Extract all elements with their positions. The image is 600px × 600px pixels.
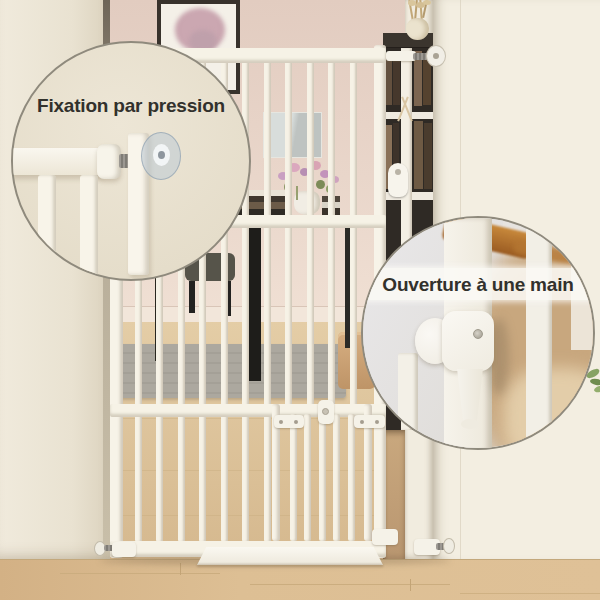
floor-plank-joint	[180, 563, 181, 575]
gate-latch-receiver	[388, 163, 408, 197]
pet-door-bar	[304, 414, 311, 541]
bottom-bracket	[372, 529, 398, 545]
bottom-fitting	[112, 542, 136, 557]
book-spine	[385, 55, 392, 105]
pampas-fluff	[408, 0, 416, 6]
pet-door-hinge-plate	[274, 415, 304, 428]
pet-door-bar	[333, 414, 340, 541]
gate-bar-close-up	[80, 175, 98, 281]
book-spine	[414, 121, 423, 189]
shelf-vase	[406, 18, 429, 40]
callout-one-hand-open: Ouverture à une main	[361, 216, 595, 450]
pampas-fluff	[423, 0, 431, 5]
flower-stem	[296, 186, 298, 200]
pet-door-bar	[348, 414, 355, 541]
pet-door-bar	[319, 414, 326, 541]
gate-bar	[307, 55, 314, 407]
floor-plank-line	[60, 573, 220, 574]
gate-lower-rail	[110, 404, 386, 417]
latch-hole	[395, 169, 401, 175]
pet-door-hinge-plate	[354, 415, 385, 428]
knob-hole	[322, 408, 329, 415]
screw	[294, 420, 298, 424]
pressure-rail-flange	[97, 144, 121, 179]
screw	[360, 420, 364, 424]
handle-screw	[473, 329, 483, 339]
table-leg	[248, 224, 261, 381]
pet-door-bar	[290, 414, 297, 541]
chair-leg	[189, 281, 195, 313]
book-spine	[424, 123, 432, 189]
threshold-shadow	[197, 564, 383, 567]
gate-bar-close-up	[526, 218, 552, 450]
floor-plank-line	[460, 593, 600, 594]
wall-pad	[443, 538, 455, 554]
gate-bar	[285, 55, 292, 407]
floor-plank-line	[250, 584, 450, 585]
handle-stem-cap	[461, 419, 479, 429]
screw	[375, 420, 379, 424]
gate-bar	[328, 55, 335, 407]
wall-pad-screw	[158, 151, 165, 159]
callout-open-label: Ouverture à une main	[363, 274, 593, 296]
tension-rod	[386, 51, 416, 61]
handle-body[interactable]	[442, 311, 494, 371]
pet-door-latch-knob[interactable]	[318, 400, 334, 424]
flower-leaf	[316, 180, 325, 189]
floor-plank-joint	[410, 579, 411, 591]
product-image: Fixation par pression Ouverture à une ma…	[0, 0, 600, 600]
pad-screw	[433, 53, 439, 59]
screw	[279, 420, 283, 424]
pressure-rail-close-up	[11, 148, 103, 175]
gate-bar	[350, 55, 357, 407]
threshold-ramp	[197, 547, 383, 565]
wall-pad	[426, 45, 446, 67]
callout-pressure-mount: Fixation par pression	[11, 41, 251, 281]
callout-pressure-label: Fixation par pression	[13, 95, 249, 117]
gate-bar	[264, 55, 271, 542]
